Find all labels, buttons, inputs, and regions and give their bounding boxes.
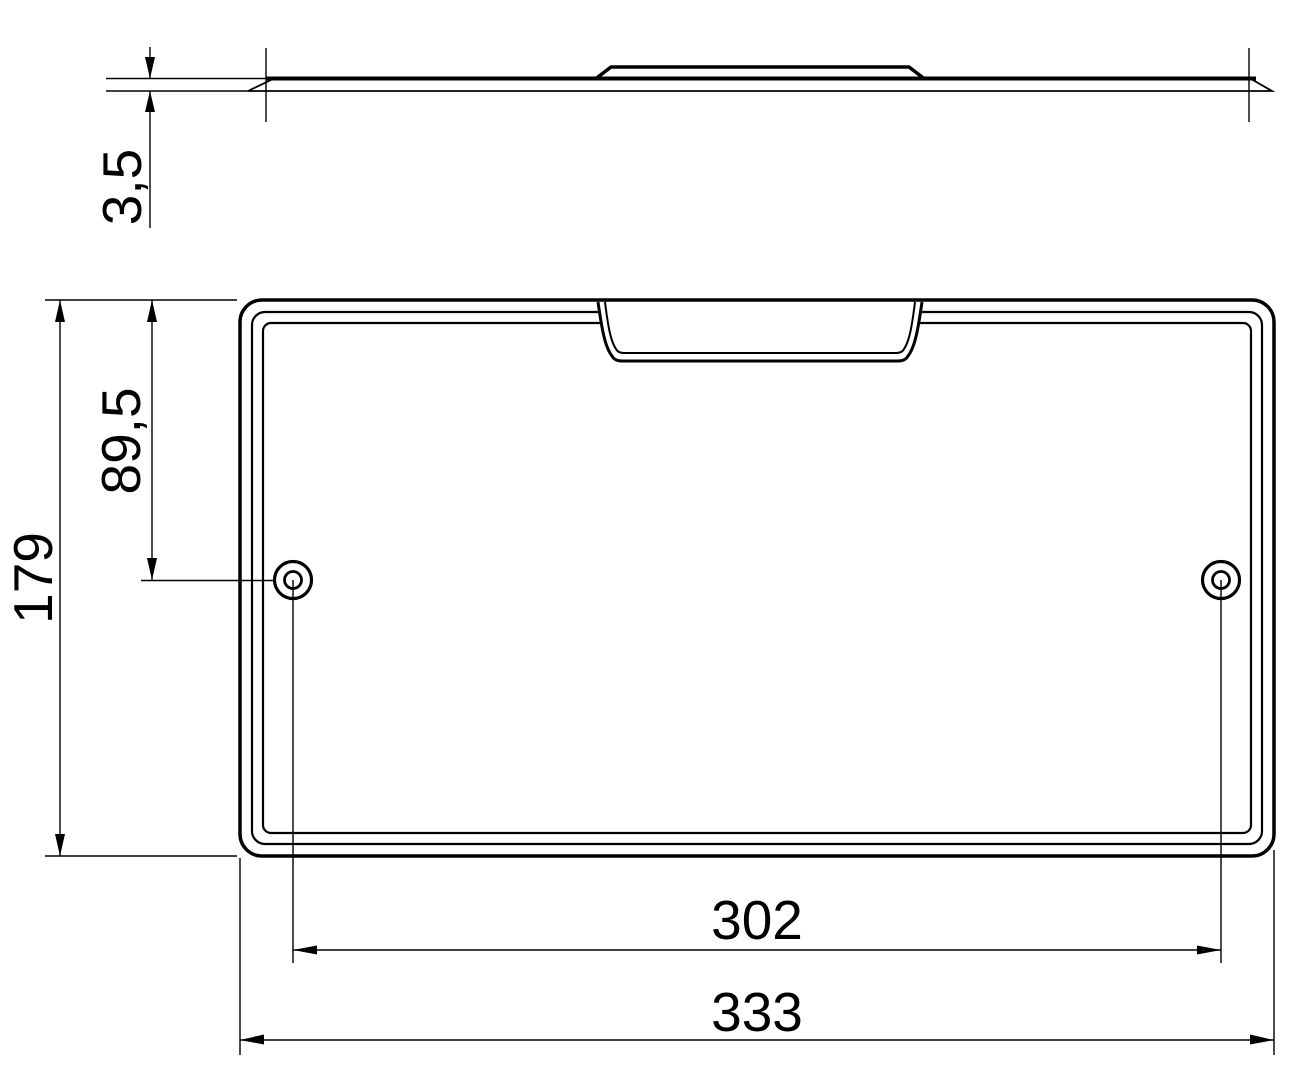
technical-drawing: 3,5 179 89,5: [0, 0, 1296, 1080]
arrowhead-down: [147, 558, 157, 580]
dimension-label-hole-spacing: 302: [711, 889, 803, 951]
arrowhead-right: [1250, 1035, 1274, 1045]
drawing-sheet: 3,5 179 89,5: [0, 0, 1296, 1080]
arrowhead-up: [55, 300, 65, 322]
arrowhead-left: [240, 1035, 264, 1045]
plate-outer-outline: [240, 300, 1274, 856]
arrowhead-up: [145, 91, 155, 112]
arrowhead-down: [55, 834, 65, 856]
dimension-thickness: 3,5: [91, 47, 270, 228]
dimension-hole-offset: 89,5: [90, 300, 274, 581]
dimension-plate-width: 333: [240, 850, 1274, 1055]
dimension-hole-spacing: 302: [293, 580, 1221, 963]
dimension-label-thickness: 3,5: [91, 149, 153, 225]
dimension-label-plate-width: 333: [711, 981, 803, 1043]
dimension-plate-height: 179: [2, 300, 237, 856]
side-profile-view: [248, 48, 1272, 122]
dimension-label-hole-offset: 89,5: [90, 387, 152, 494]
plate-edge-line-inner-2: [263, 323, 1251, 833]
front-view: [240, 300, 1274, 856]
arrowhead-right: [1197, 946, 1221, 955]
arrowhead-up: [147, 300, 157, 322]
recess-mask: [600, 305, 920, 349]
plate-edge-line-inner-1: [252, 312, 1262, 844]
side-profile-outline: [248, 80, 1272, 92]
arrowhead-left: [293, 946, 317, 955]
arrowhead-down: [145, 57, 155, 79]
dimension-label-plate-height: 179: [2, 532, 64, 624]
